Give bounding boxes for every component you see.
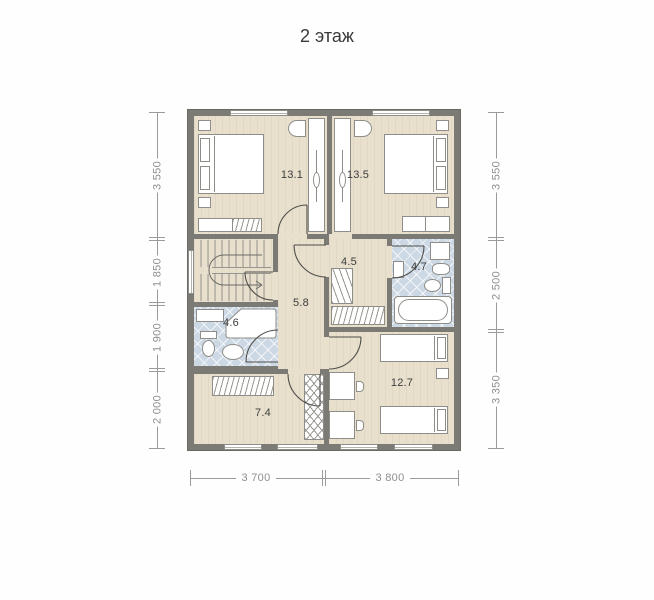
floor-plan: 13.1 13.5 4.5 4.7 5.8 4.6 7.4 12.7 [188,110,460,450]
dimension-tick [149,112,165,113]
door-arc-bedroom-bottom [329,337,361,369]
dimension-value: 1 850 [151,256,166,290]
door-arc-dressing [294,245,326,277]
room-label-dressing: 4.5 [334,255,364,269]
dimension-value: 3 350 [490,373,505,407]
dimension-tick [488,237,504,238]
door-arc-storage [288,374,320,406]
dimension-tick [190,470,191,486]
room-label-storage: 7.4 [248,406,278,420]
dimension-tick [488,332,504,333]
floor-plan-page: 2 этаж [0,0,654,600]
dimension-tick [488,112,504,113]
dimension-tick [488,329,504,330]
dimension-tick [488,240,504,241]
dimension-tick [149,371,165,372]
dimension-tick [325,470,326,486]
staircase-treads [201,240,271,301]
dimension-line-bottom [190,478,458,479]
dimension-tick [149,237,165,238]
room-label-bathroom-right: 4.7 [404,260,434,274]
dimension-tick [149,368,165,369]
dimension-tick [149,302,165,303]
dimension-value: 3 700 [236,471,276,486]
room-label-bathroom-left: 4.6 [216,316,246,330]
door-arc-staircase [245,272,273,300]
room-label-bedroom-right: 13.5 [338,168,378,182]
dimension-value: 1 900 [151,321,166,355]
doors-and-stairs-overlay [188,110,460,450]
dimension-tick [488,448,504,449]
dimension-value: 3 550 [490,159,505,193]
dimension-tick [458,470,459,486]
room-label-bedroom-bottom: 12.7 [384,376,420,390]
room-label-hall: 5.8 [286,296,316,310]
dimension-tick [322,470,323,486]
dimension-tick [149,240,165,241]
page-title: 2 этаж [0,26,654,47]
dimension-tick [149,448,165,449]
door-arc-bedroom-left [278,205,307,234]
dimension-value: 2 000 [151,393,166,427]
dimension-tick [149,305,165,306]
dimension-value: 3 550 [151,159,166,193]
room-label-bedroom-left: 13.1 [272,168,312,182]
dimension-value: 2 500 [490,269,505,303]
dimension-value: 3 800 [370,471,410,486]
